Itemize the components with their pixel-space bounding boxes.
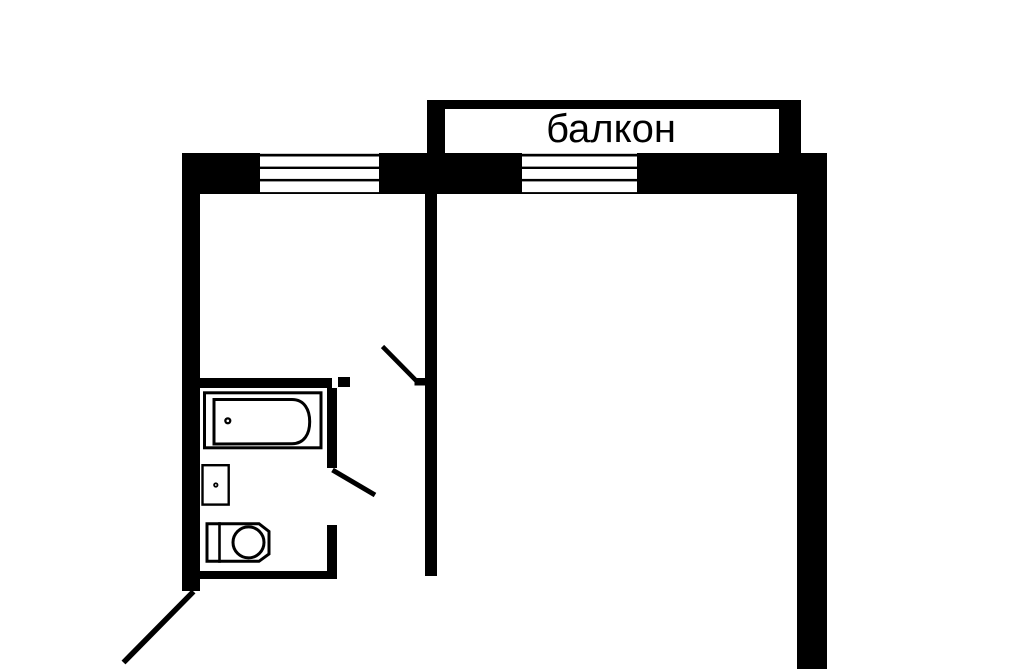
svg-text:балкон: балкон [546, 107, 676, 151]
